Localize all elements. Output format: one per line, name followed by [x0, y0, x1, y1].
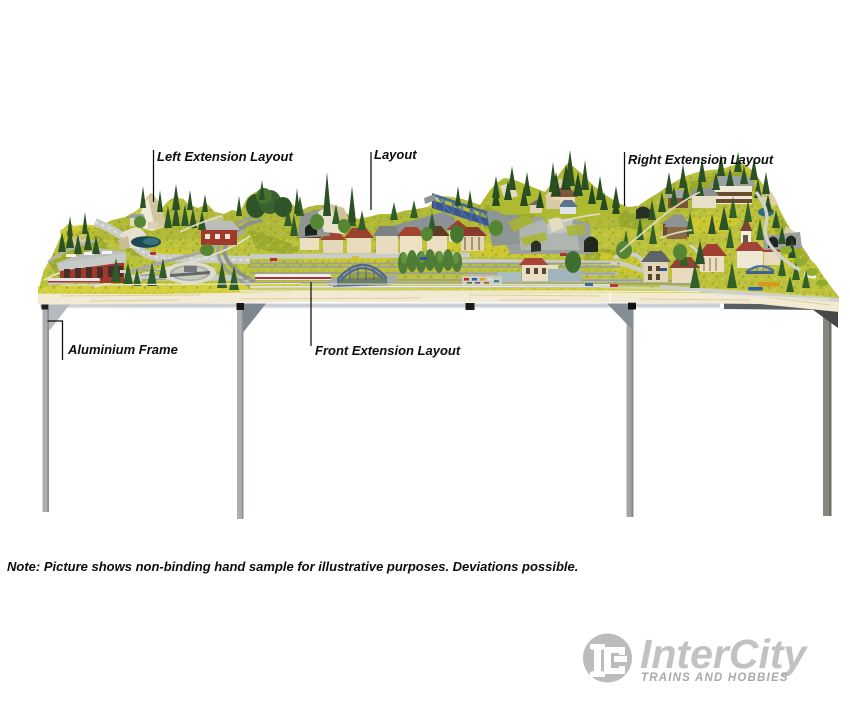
svg-text:InterCity: InterCity — [640, 631, 809, 677]
svg-text:TRAINS AND HOBBIES: TRAINS AND HOBBIES — [641, 672, 789, 684]
